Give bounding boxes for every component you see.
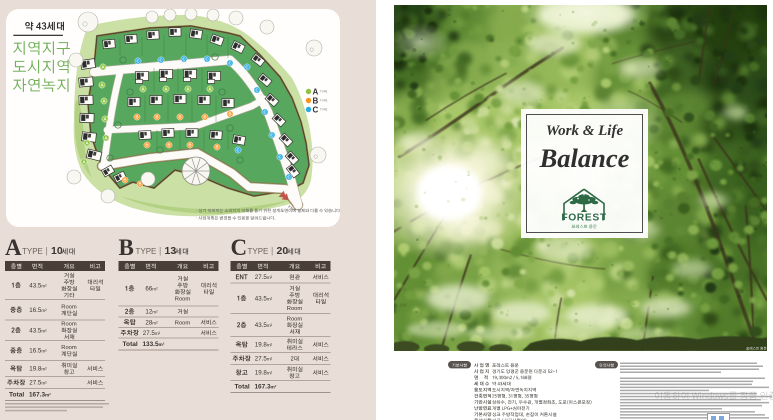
svg-text:Total: Total — [235, 384, 250, 391]
svg-text:16.5m²: 16.5m² — [29, 307, 47, 314]
svg-text:19.8m²: 19.8m² — [29, 366, 47, 373]
svg-text:Room: Room — [287, 316, 303, 322]
svg-text:20: 20 — [277, 245, 289, 257]
svg-text:TYPE: TYPE — [320, 99, 327, 103]
svg-text:|: | — [271, 246, 273, 256]
svg-text:167.3m²: 167.3m² — [29, 392, 51, 399]
svg-text:FOREST: FOREST — [561, 212, 606, 223]
svg-text:27.5m²: 27.5m² — [255, 356, 273, 363]
svg-text:TYPE: TYPE — [136, 247, 157, 256]
svg-text:27.5m²: 27.5m² — [143, 330, 161, 337]
svg-text:TYPE: TYPE — [320, 90, 327, 94]
svg-text:B: B — [313, 96, 319, 105]
svg-text:167.3m²: 167.3m² — [255, 384, 277, 391]
svg-text:43.5m²: 43.5m² — [29, 327, 47, 334]
svg-text:Room: Room — [61, 304, 77, 310]
svg-text:43.5m²: 43.5m² — [255, 322, 273, 329]
svg-text:19.8m²: 19.8m² — [255, 342, 273, 349]
svg-text:12m²: 12m² — [145, 309, 158, 316]
svg-text:Room: Room — [61, 322, 77, 328]
svg-text:Room: Room — [287, 306, 303, 312]
svg-text:10: 10 — [51, 245, 63, 257]
svg-text:27.5m²: 27.5m² — [255, 274, 273, 281]
svg-text:66m²: 66m² — [145, 286, 158, 293]
svg-text:Room: Room — [61, 345, 77, 351]
svg-text:133.5m²: 133.5m² — [143, 341, 165, 348]
svg-text:B: B — [119, 235, 134, 260]
svg-text:Total: Total — [9, 392, 24, 399]
svg-text:TYPE: TYPE — [22, 247, 43, 256]
svg-text:TYPE: TYPE — [248, 247, 269, 256]
svg-text:Total: Total — [123, 341, 138, 348]
svg-text:16.5m²: 16.5m² — [29, 348, 47, 355]
svg-text:C: C — [313, 105, 319, 114]
svg-text:19.8m²: 19.8m² — [255, 370, 273, 377]
svg-text:27.5m²: 27.5m² — [29, 380, 47, 387]
svg-text:|: | — [46, 246, 48, 256]
svg-text:|: | — [159, 246, 161, 256]
svg-text:Room: Room — [175, 296, 191, 302]
svg-text:43.5m²: 43.5m² — [255, 295, 273, 302]
svg-text:13: 13 — [165, 245, 177, 257]
svg-text:C: C — [231, 235, 248, 260]
svg-text:Room: Room — [175, 320, 191, 326]
svg-text:28m²: 28m² — [145, 319, 158, 326]
svg-text:A: A — [5, 235, 22, 260]
svg-text:TYPE: TYPE — [320, 108, 327, 112]
svg-text:A: A — [313, 87, 319, 96]
svg-text:43.5m²: 43.5m² — [29, 282, 47, 289]
